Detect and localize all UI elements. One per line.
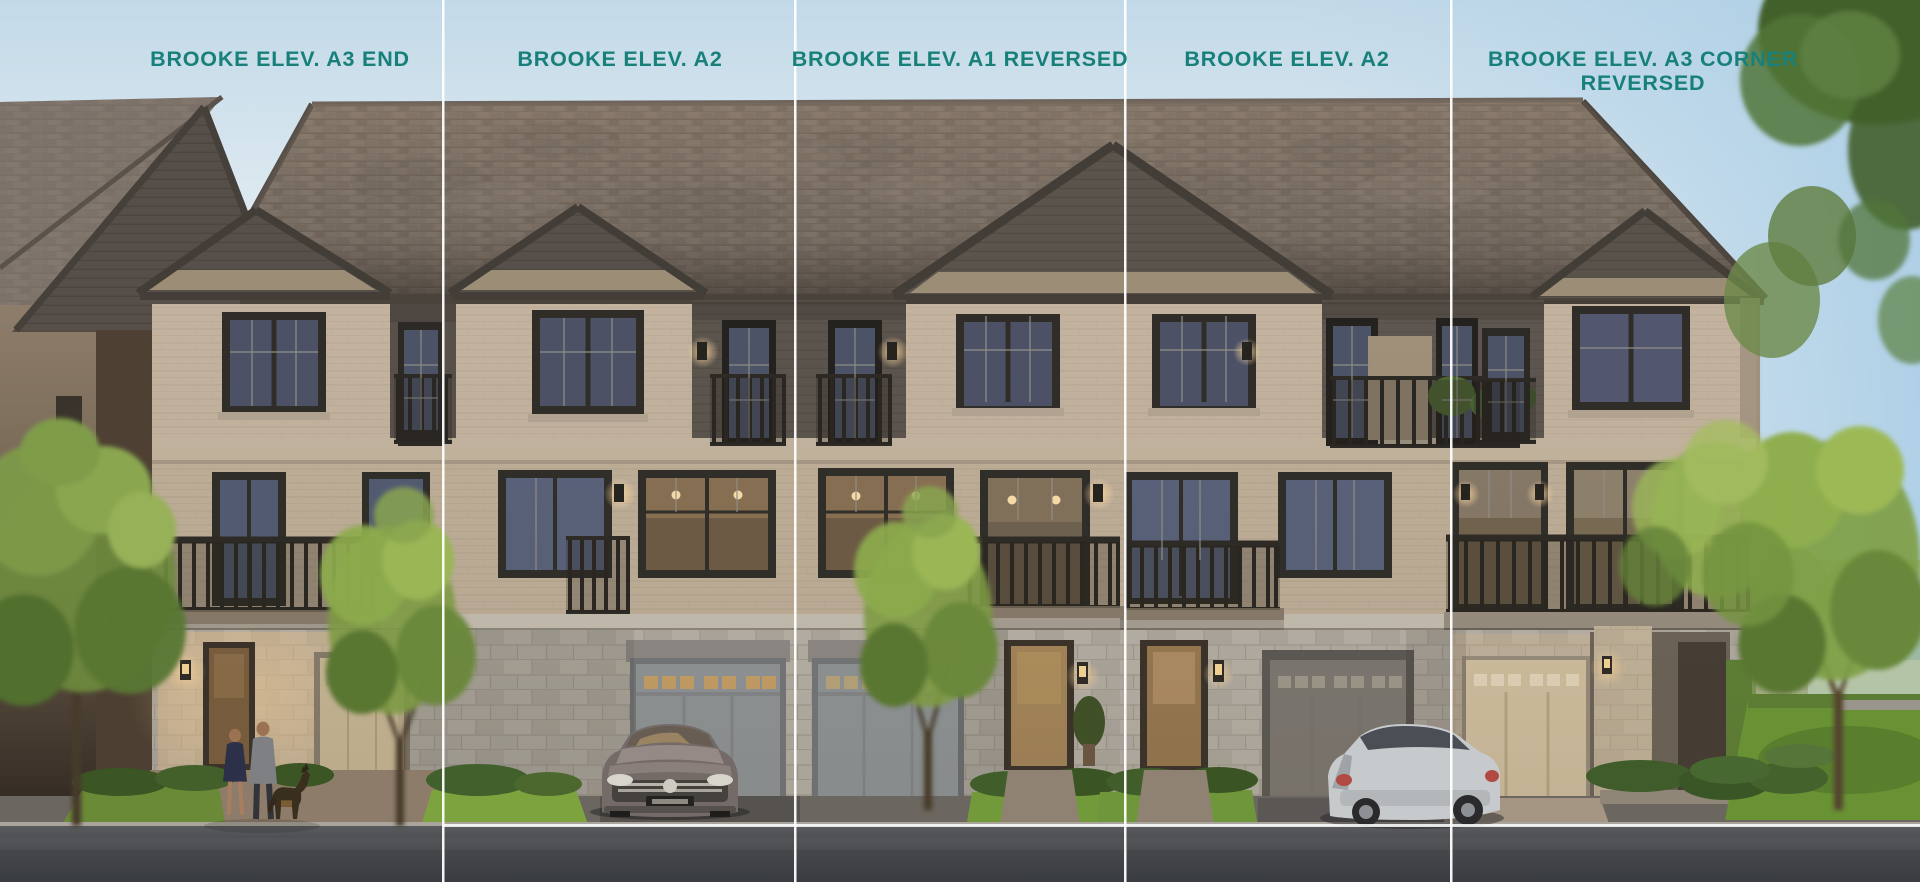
svg-text:BROOKE ELEV. A1 REVERSED: BROOKE ELEV. A1 REVERSED [792, 47, 1129, 71]
svg-text:BROOKE ELEV. A3 CORNER: BROOKE ELEV. A3 CORNER [1488, 47, 1798, 71]
svg-text:BROOKE ELEV. A3 END: BROOKE ELEV. A3 END [150, 47, 410, 71]
svg-text:BROOKE ELEV. A2: BROOKE ELEV. A2 [1184, 47, 1389, 71]
svg-text:REVERSED: REVERSED [1581, 71, 1706, 95]
svg-text:BROOKE ELEV. A2: BROOKE ELEV. A2 [517, 47, 722, 71]
